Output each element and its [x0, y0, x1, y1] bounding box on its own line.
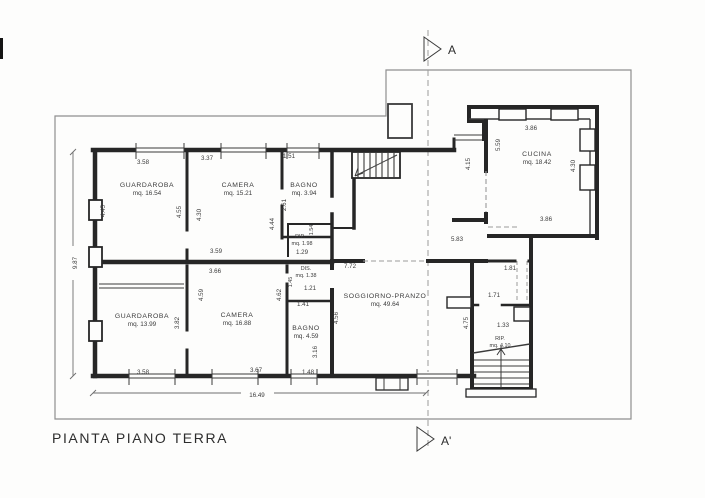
entrance-steps	[376, 378, 408, 390]
window	[136, 143, 184, 159]
section-arrow-bottom-icon	[417, 427, 434, 451]
dim: 3.86	[540, 216, 553, 223]
dim: 4.59	[198, 288, 205, 301]
dim: 4.75	[463, 316, 470, 329]
room-dis-name: DIS.	[301, 266, 311, 272]
dim: 7.72	[344, 263, 357, 270]
dim: 1.29	[296, 249, 309, 256]
dim: 9.87	[72, 256, 79, 269]
dim: 3.37	[201, 155, 214, 162]
dim: 4.45	[100, 204, 107, 217]
dim: 3.16	[312, 345, 319, 358]
dim: 1.45	[288, 277, 294, 288]
room-bagno1-area: mq. 3.94	[292, 190, 317, 197]
stair-landing	[466, 389, 536, 397]
property-boundary	[55, 70, 631, 419]
room-soggiorno-name: SOGGIORNO-PRANZO	[344, 293, 427, 300]
window	[221, 143, 266, 159]
window	[417, 369, 457, 385]
section-label-top: A	[448, 43, 456, 57]
room-cucina-name: CUCINA	[522, 151, 552, 158]
dim: 3.82	[174, 316, 181, 329]
room-dis-area: mq. 1.38	[296, 273, 317, 279]
dim: 4.30	[196, 208, 203, 221]
section-marker-bottom: A'	[417, 427, 451, 451]
room-bagno2-name: BAGNO	[292, 325, 320, 332]
dim: 4.55	[176, 205, 183, 218]
dim: 1.51	[283, 153, 296, 160]
dim: 3.58	[137, 369, 150, 376]
dim: 1.71	[488, 292, 501, 299]
room-soggiorno-area: mq. 49.64	[371, 301, 400, 308]
room-camera2-name: CAMERA	[221, 312, 254, 319]
room-rip2-area: mq. 4.10	[490, 343, 511, 349]
room-camera2-area: mq. 16.88	[223, 320, 252, 327]
room-rip1-name: RIP.	[295, 234, 305, 240]
dim: 4.62	[276, 288, 283, 301]
staircase-bottom	[466, 344, 536, 397]
dim: 1.54	[309, 225, 315, 236]
dim: 4.30	[570, 159, 577, 172]
wall-pillar	[89, 247, 102, 267]
section-arrow-top-icon	[424, 37, 441, 61]
staircase-top	[352, 152, 400, 178]
section-label-bottom: A'	[441, 434, 451, 448]
dim: 16.49	[249, 392, 265, 399]
room-rip1-area: mq. 1.98	[292, 241, 313, 247]
dim: 4.56	[333, 311, 340, 324]
dim: 1.81	[504, 265, 517, 272]
dim: 3.66	[209, 268, 222, 275]
dim: 5.59	[495, 138, 502, 151]
room-camera1-area: mq. 15.21	[224, 190, 253, 197]
dim: 1.41	[297, 301, 310, 308]
window-recess	[580, 165, 595, 190]
dim: 3.67	[250, 367, 263, 374]
boundary-stub	[388, 104, 412, 138]
wall-pillar	[89, 321, 102, 341]
scan-artifact	[0, 38, 3, 59]
room-guardaroba2-name: GUARDAROBA	[115, 313, 169, 320]
room-guardaroba1-area: mq. 16.54	[133, 190, 162, 197]
room-bagno2-area: mq. 4.59	[294, 333, 319, 340]
room-camera1-name: CAMERA	[222, 182, 255, 189]
dim: 3.59	[210, 248, 223, 255]
room-rip2-name: RIP.	[495, 336, 505, 342]
window-recess	[551, 109, 578, 120]
room-bagno1-name: BAGNO	[290, 182, 318, 189]
floor-plan-page: A A'	[0, 0, 705, 498]
room-cucina-area: mq. 18.42	[523, 159, 552, 166]
window	[129, 369, 175, 385]
dim: 3.86	[525, 125, 538, 132]
dim: 2.61	[281, 198, 288, 211]
plan-title: PIANTA PIANO TERRA	[52, 430, 228, 446]
dim: 3.58	[137, 159, 150, 166]
room-guardaroba1-name: GUARDAROBA	[120, 182, 174, 189]
wall-niche	[447, 297, 471, 308]
room-guardaroba2-area: mq. 13.99	[128, 321, 157, 328]
window-recess	[499, 109, 526, 120]
floor-plan-drawing: A A'	[0, 0, 705, 498]
dim: 5.83	[451, 236, 464, 243]
dim: 4.44	[269, 217, 276, 230]
window-recess	[580, 129, 595, 151]
dim: 4.15	[465, 157, 472, 170]
duct-box	[514, 307, 530, 321]
dim: 1.21	[304, 285, 317, 292]
section-marker-top: A	[424, 37, 456, 61]
dim: 1.33	[497, 322, 510, 329]
dim: 1.48	[302, 369, 315, 376]
